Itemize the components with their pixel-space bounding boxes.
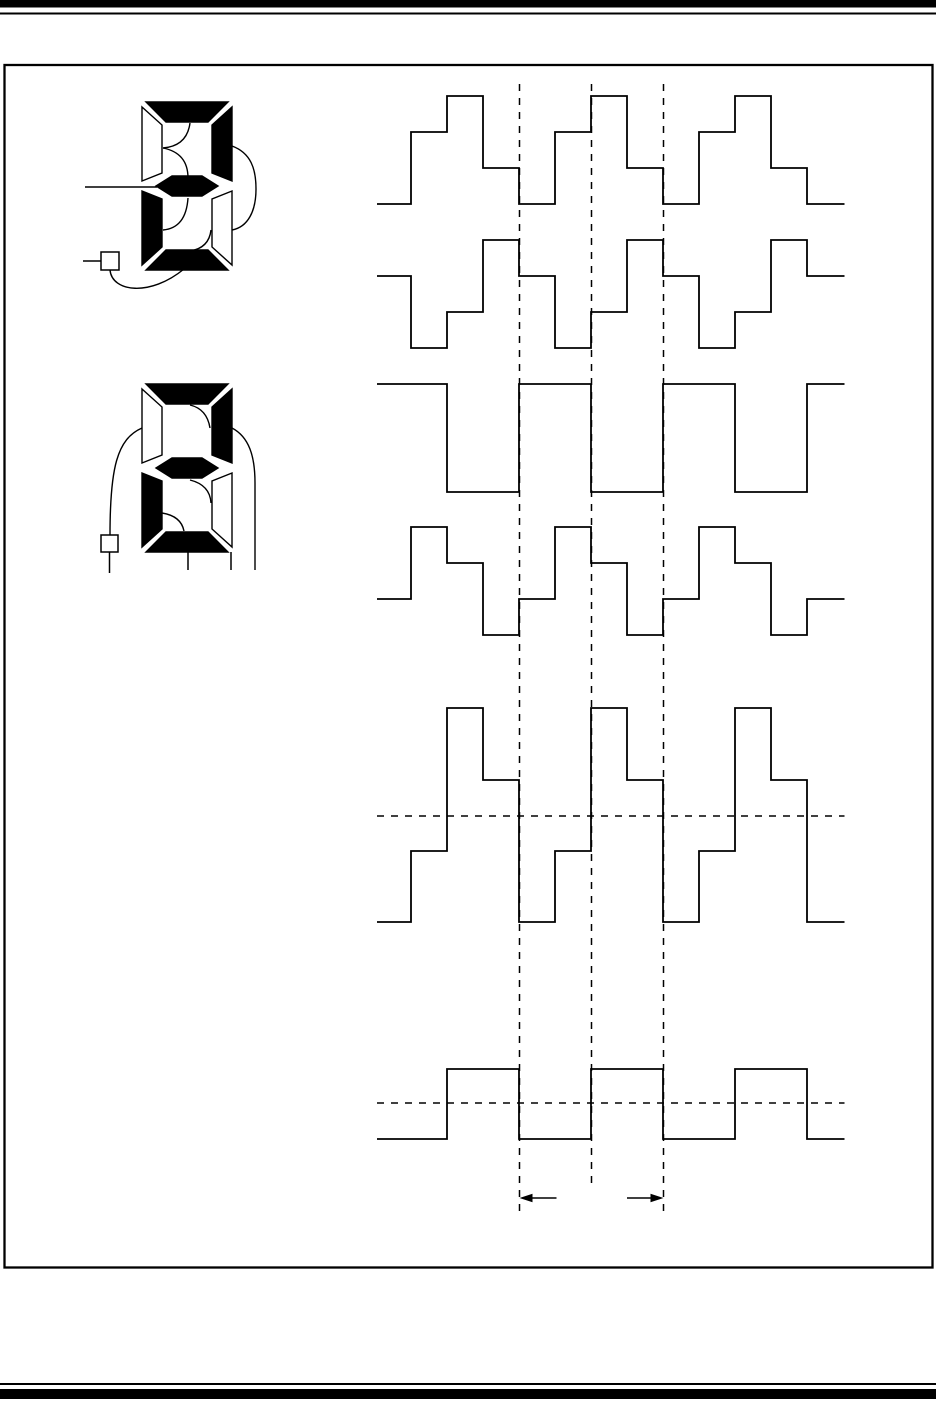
- wire-f-to-g: [163, 148, 188, 178]
- dimension-arrowhead-right: [651, 1194, 664, 1202]
- dimension-arrowhead-left: [520, 1194, 533, 1202]
- waveform-6-trace: [377, 1069, 845, 1139]
- seven-segment-display-top-segment-e: [142, 191, 162, 265]
- seven-segment-display-bottom-segment-f: [142, 389, 162, 463]
- seven-segment-display-bottom-segment-b: [212, 389, 232, 463]
- seven-segment-display-bottom-segment-g: [156, 458, 218, 478]
- page-bottom-rule-thin: [0, 1383, 936, 1385]
- waveform-5-trace: [377, 708, 845, 922]
- waveform-3-trace: [377, 384, 845, 492]
- seven-segment-display-bottom-segment-a: [146, 384, 228, 404]
- seven-segment-display-bottom-terminal-square: [101, 535, 118, 552]
- datasheet-figure-page: [0, 0, 936, 1412]
- waveform-3-row: [377, 384, 845, 492]
- wire-square-to-d: [110, 269, 184, 288]
- page-top-rule-thin: [0, 13, 936, 15]
- page-bottom-rule-thick: [0, 1389, 936, 1399]
- seven-segment-display-top-segment-a: [146, 102, 228, 122]
- waveform-1-trace: [377, 96, 845, 204]
- waveform-6-row: [377, 1069, 845, 1139]
- seven-segment-display-top-terminal-square: [101, 252, 119, 270]
- seven-segment-display-bottom-segment-e: [142, 473, 162, 547]
- wire-a-to-b: [190, 405, 210, 428]
- wire-e-to-d: [162, 513, 184, 531]
- wire-f-to-terminal: [110, 428, 142, 535]
- wire-g-to-c: [190, 480, 211, 503]
- seven-segment-display-top-segment-b: [212, 107, 232, 181]
- wire-g-to-e: [163, 198, 188, 230]
- waveform-2-trace: [377, 240, 845, 348]
- waveform-4-row: [377, 527, 845, 635]
- seven-segment-display-top: [83, 102, 256, 288]
- waveform-4-trace: [377, 527, 845, 635]
- seven-segment-display-top-segment-f: [142, 107, 162, 181]
- seven-segment-display-bottom-segment-d: [146, 532, 228, 552]
- seven-segment-display-top-segment-g: [156, 176, 218, 196]
- wire-a-to-f: [163, 123, 190, 148]
- seven-segment-display-top-segment-d: [146, 250, 228, 270]
- wire-c-to-d: [190, 230, 211, 251]
- waveform-2-row: [377, 240, 845, 348]
- figure-canvas: [0, 0, 936, 1412]
- period-dimension-arrows: [520, 1194, 664, 1202]
- seven-segment-display-bottom: [101, 384, 255, 573]
- wire-b-down-right: [232, 428, 255, 570]
- seven-segment-display-bottom-segment-c: [212, 473, 232, 547]
- waveform-1-row: [377, 96, 845, 204]
- seven-segment-display-top-segment-c: [212, 191, 232, 265]
- page-top-rule-thick: [0, 0, 936, 8]
- wire-b-to-c: [232, 146, 256, 230]
- waveform-5-row: [377, 708, 845, 922]
